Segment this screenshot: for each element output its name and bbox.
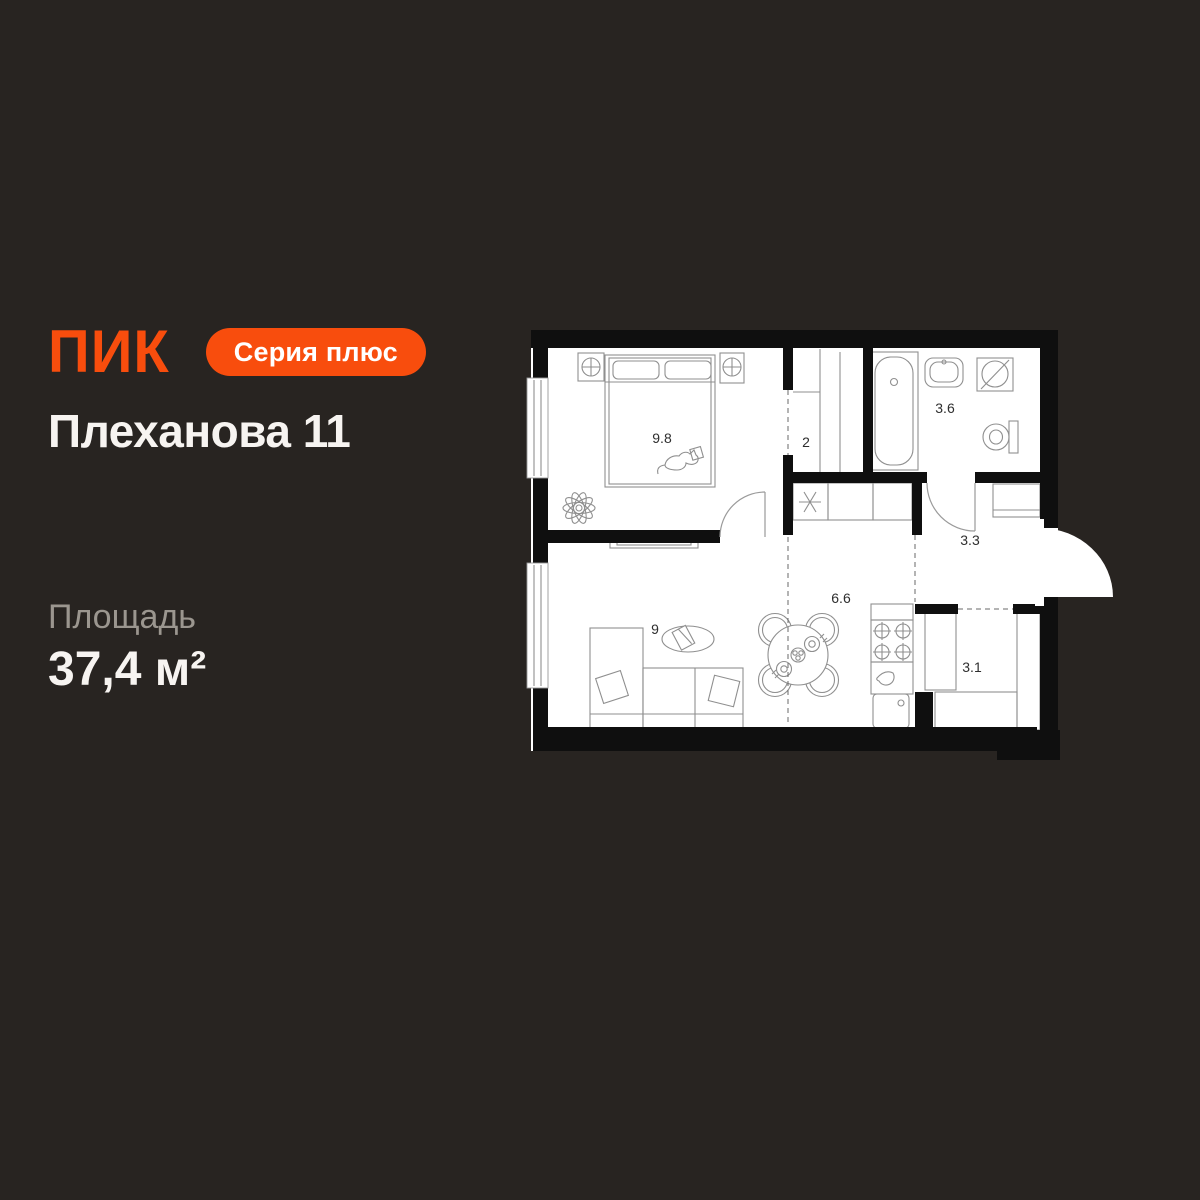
series-plus-badge: Серия плюс: [206, 328, 426, 376]
room-label-living: 9: [651, 621, 659, 637]
room-label-bedroom: 9.8: [652, 430, 672, 446]
room-label-storage: 3.1: [962, 659, 982, 675]
entrance-door: [1035, 519, 1113, 606]
room-label-kitchen: 6.6: [831, 590, 851, 606]
promo-card: ПИК Серия плюс Плеханова 11 Площадь 37,4…: [0, 0, 1200, 1200]
project-title: Плеханова 11: [48, 404, 350, 458]
coffee-table-icon: [662, 625, 714, 652]
living-room-window: [527, 563, 548, 688]
room-label-hallway: 3.3: [960, 532, 980, 548]
series-plus-badge-label: Серия плюс: [234, 337, 398, 368]
area-label: Площадь: [48, 598, 196, 637]
brand-row: ПИК Серия плюс: [48, 326, 426, 378]
room-label-bathroom: 3.6: [935, 400, 955, 416]
room-label-wardrobe: 2: [802, 434, 810, 450]
bedroom-window: [527, 378, 548, 478]
floor-plan: 9.8 2 3.6 3.3 6.6 9 3.1: [515, 322, 1120, 762]
area-value: 37,4 м²: [48, 642, 206, 697]
pik-logo: ПИК: [48, 325, 170, 379]
